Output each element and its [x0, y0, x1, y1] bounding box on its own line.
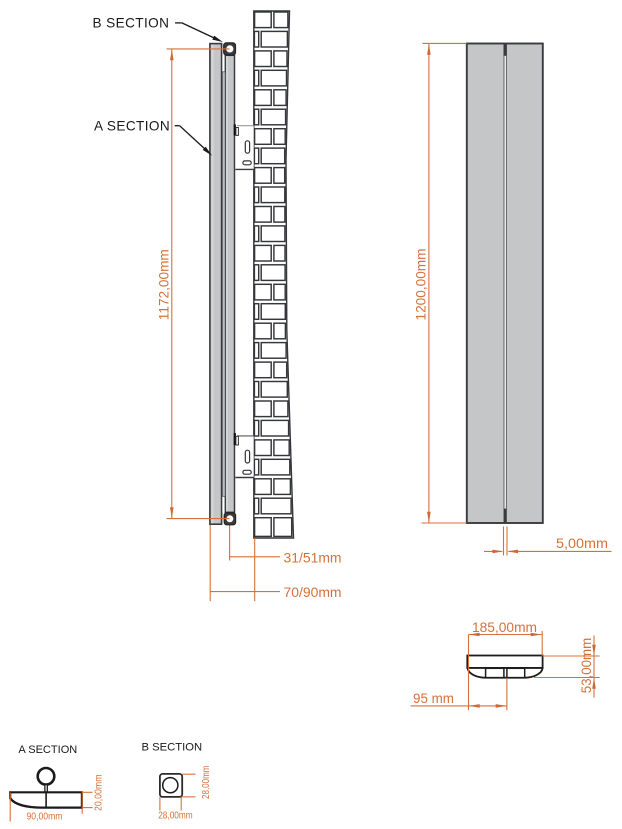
- svg-text:28,00mm: 28,00mm: [158, 811, 193, 822]
- svg-text:28,00mm: 28,00mm: [201, 766, 212, 800]
- svg-text:20,00mm: 20,00mm: [93, 774, 105, 811]
- svg-text:1200,00mm: 1200,00mm: [413, 249, 428, 321]
- svg-text:31/51mm: 31/51mm: [284, 550, 342, 565]
- svg-text:95 mm: 95 mm: [413, 691, 454, 706]
- svg-text:90,00mm: 90,00mm: [27, 812, 63, 823]
- svg-text:185,00mm: 185,00mm: [472, 620, 537, 635]
- svg-text:1172,00mm: 1172,00mm: [156, 249, 171, 320]
- svg-text:B SECTION: B SECTION: [142, 742, 203, 754]
- svg-text:70/90mm: 70/90mm: [284, 585, 342, 600]
- svg-text:5,00mm: 5,00mm: [556, 536, 608, 551]
- svg-text:B SECTION: B SECTION: [93, 16, 170, 31]
- svg-text:53,00mm: 53,00mm: [579, 638, 594, 693]
- svg-text:A SECTION: A SECTION: [18, 744, 77, 756]
- svg-text:A SECTION: A SECTION: [94, 119, 170, 134]
